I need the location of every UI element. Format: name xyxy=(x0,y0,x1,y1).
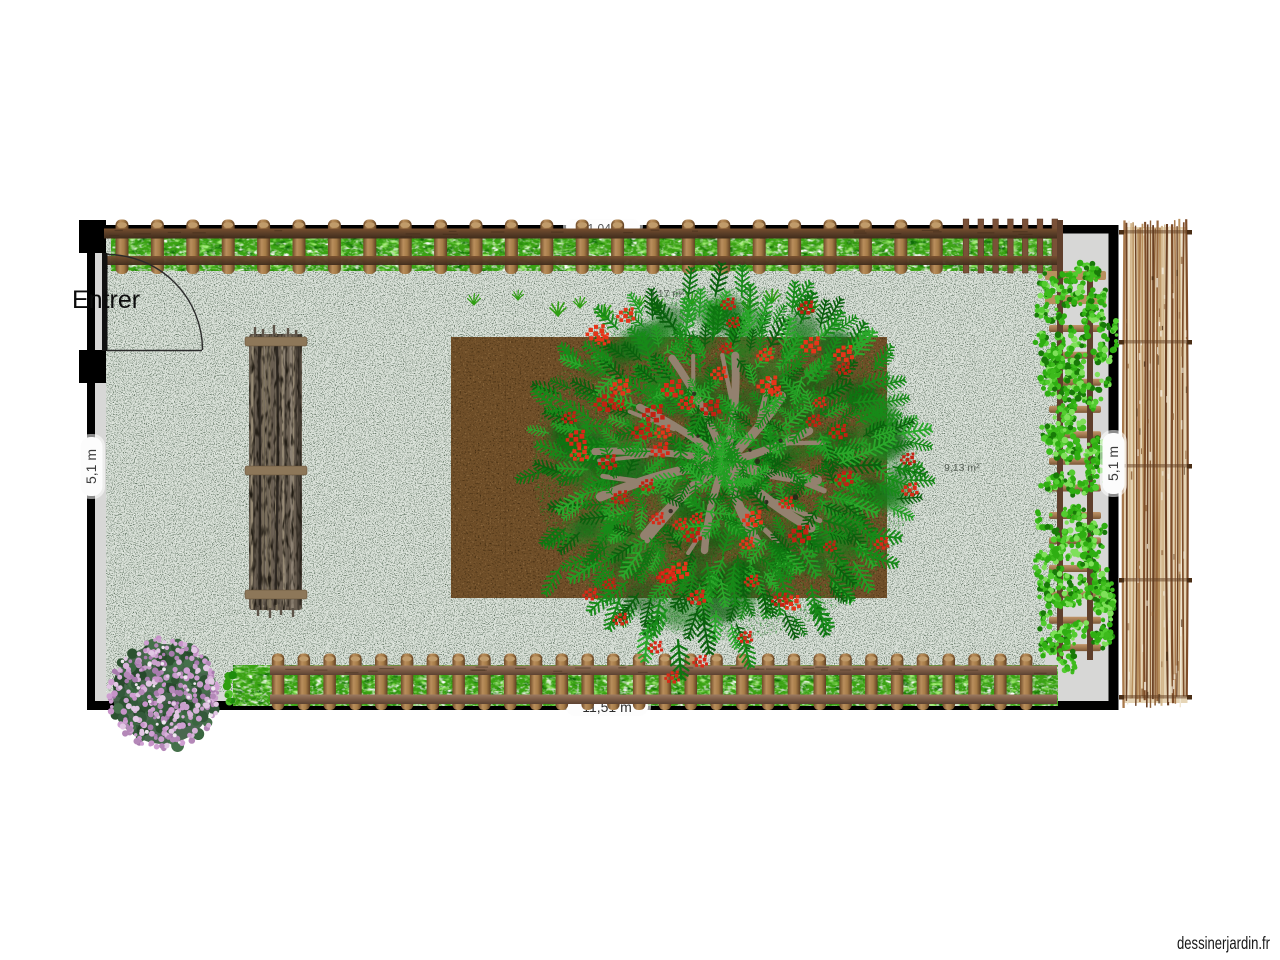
svg-text:Entrer: Entrer xyxy=(72,286,140,314)
svg-text:5,1 m: 5,1 m xyxy=(83,449,99,484)
svg-text:dessinerjardin.fr: dessinerjardin.fr xyxy=(1177,933,1270,953)
svg-text:5,1 m: 5,1 m xyxy=(1105,446,1121,481)
svg-text:9,13 m²: 9,13 m² xyxy=(944,462,980,474)
